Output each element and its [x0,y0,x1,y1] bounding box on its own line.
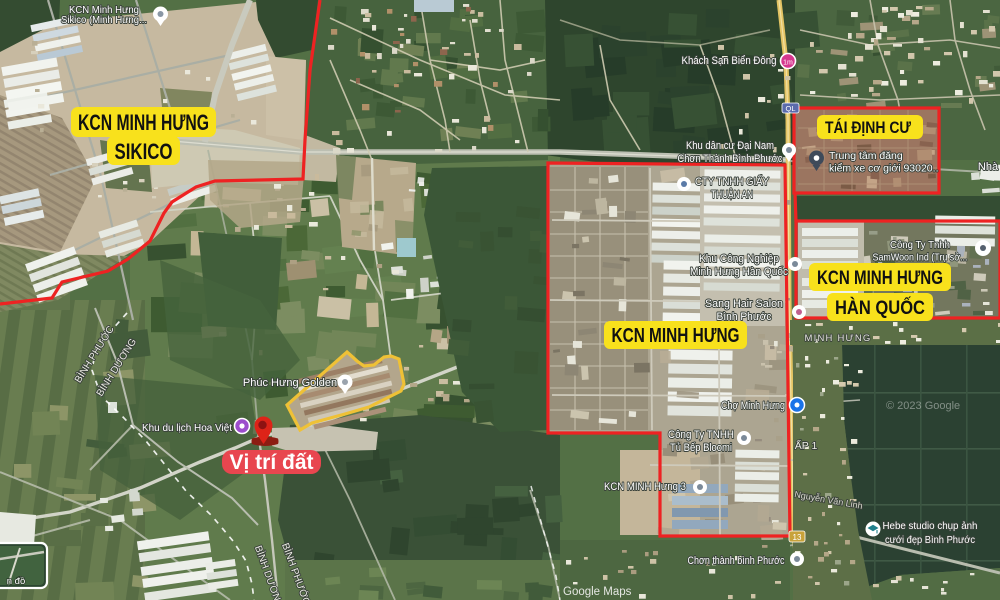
svg-text:KCN MINH HƯNG: KCN MINH HƯNG [817,268,943,289]
svg-text:Trung tâm đăng: Trung tâm đăng [829,150,903,162]
svg-text:Hebe studio chụp ảnh: Hebe studio chụp ảnh [883,520,978,532]
svg-text:Sikico (Minh Hưng...: Sikico (Minh Hưng... [61,14,147,26]
svg-text:THUẬN AN: THUẬN AN [711,188,753,201]
svg-text:CTY TNHH GIẤY: CTY TNHH GIẤY [695,175,770,188]
svg-text:Tủ Bếp Bloomi: Tủ Bếp Bloomi [670,442,732,454]
svg-text:Khách Sạn Biển Đông: Khách Sạn Biển Đông [682,55,777,67]
svg-text:KCN MINH HƯNG: KCN MINH HƯNG [78,110,209,135]
svg-text:cưới đẹp Bình Phước: cưới đẹp Bình Phước [885,534,975,546]
svg-text:Phúc Hưng Golden: Phúc Hưng Golden [243,377,337,389]
svg-text:Công Ty Tnhh: Công Ty Tnhh [890,239,950,251]
svg-text:Chơn thành bình Phước: Chơn thành bình Phước [688,555,785,567]
svg-text:Chợ Minh Hưng: Chợ Minh Hưng [721,400,785,412]
svg-text:Google Maps: Google Maps [563,586,632,598]
svg-text:© 2023 Google: © 2023 Google [886,400,960,412]
svg-text:Nhà: Nhà [978,161,999,173]
svg-text:QL: QL [785,104,795,113]
svg-text:ẤP 1: ẤP 1 [795,439,818,452]
svg-text:Công Ty TNHH: Công Ty TNHH [668,429,734,441]
svg-text:Khu Công Nghiệp: Khu Công Nghiệp [699,253,779,265]
svg-text:1m: 1m [783,60,793,67]
svg-text:13: 13 [793,533,802,542]
svg-text:SamWoon Ind (Trụ sở...: SamWoon Ind (Trụ sở... [873,252,968,264]
svg-text:MINH HƯNG: MINH HƯNG [805,333,872,344]
svg-text:Chơn Thành Bình Phước: Chơn Thành Bình Phước [678,153,783,165]
svg-text:Khu dân cư Đại Nam: Khu dân cư Đại Nam [686,140,774,152]
svg-text:KCN MINH HƯNG: KCN MINH HƯNG [612,325,740,347]
svg-text:Minh Hưng Hàn Quốc: Minh Hưng Hàn Quốc [690,266,788,278]
svg-text:kiểm xe cơ giới 93020..: kiểm xe cơ giới 93020.. [829,163,939,175]
svg-text:Sang Hair Salon: Sang Hair Salon [705,298,783,310]
svg-text:KCN MINH Hưng 3: KCN MINH Hưng 3 [604,481,686,493]
svg-text:Vị trí đất: Vị trí đất [229,451,313,474]
svg-text:TÁI ĐỊNH CƯ: TÁI ĐỊNH CƯ [825,118,912,137]
svg-text:n đồ: n đồ [7,576,26,587]
svg-text:HÀN QUỐC: HÀN QUỐC [835,297,925,319]
svg-text:SIKICO: SIKICO [115,139,173,164]
svg-text:Khu du lịch Hoa Việt: Khu du lịch Hoa Việt [142,422,232,434]
